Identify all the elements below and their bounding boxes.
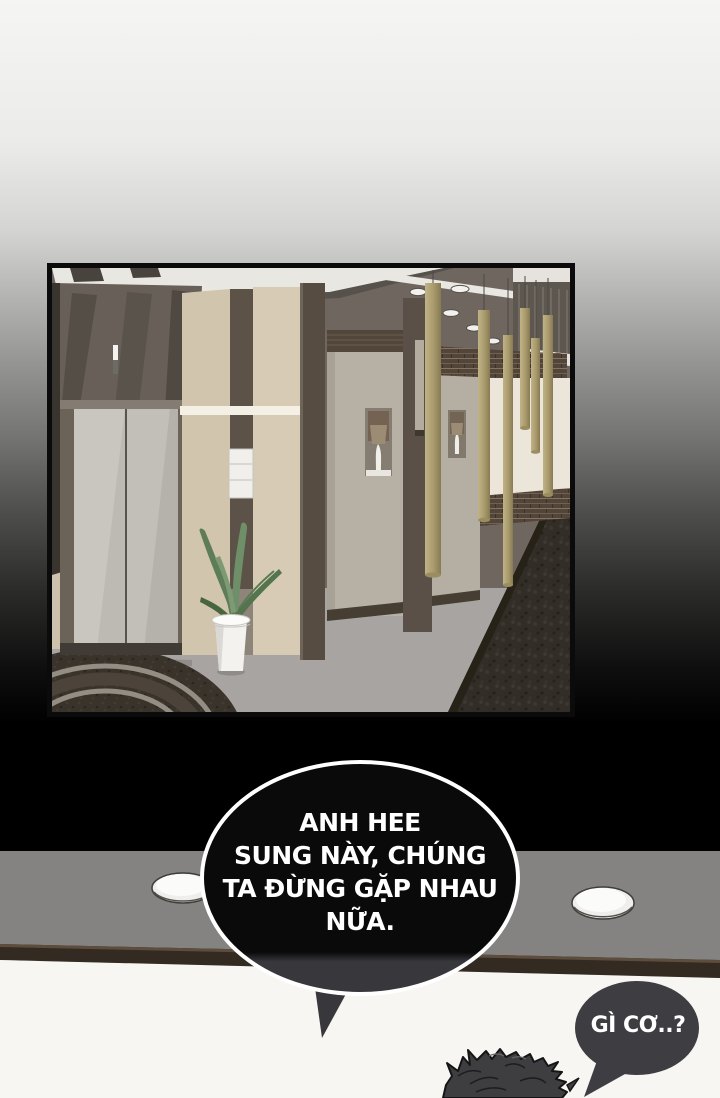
main-bubble-line-4: NỮA. <box>204 905 516 938</box>
main-bubble-line-3: TA ĐỪNG GẶP NHAU <box>204 872 516 905</box>
reply-bubble-text: GÌ CƠ..? <box>577 1013 699 1039</box>
comic-page: ANH HEE SUNG NÀY, CHÚNG TA ĐỪNG GẶP NHAU… <box>0 0 720 1098</box>
reply-speech-bubble <box>575 981 699 1097</box>
character-hair <box>443 1049 579 1098</box>
main-bubble-text: ANH HEE SUNG NÀY, CHÚNG TA ĐỪNG GẶP NHAU… <box>204 806 516 938</box>
main-bubble-line-1: ANH HEE <box>204 806 516 839</box>
main-bubble-line-2: SUNG NÀY, CHÚNG <box>204 839 516 872</box>
